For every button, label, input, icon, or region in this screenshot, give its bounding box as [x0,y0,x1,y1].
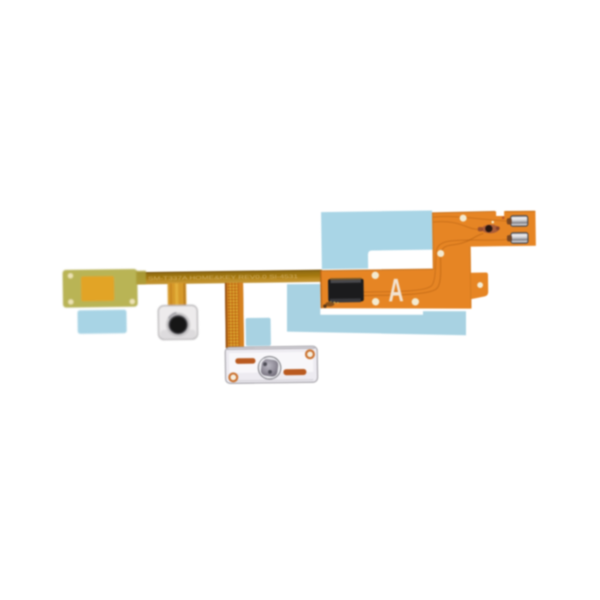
svg-text:A: A [388,272,404,308]
